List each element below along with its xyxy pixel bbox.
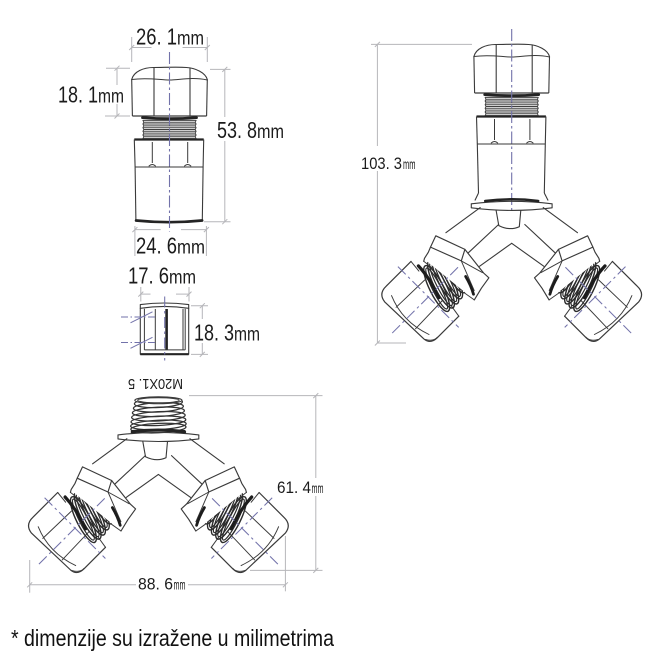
svg-text:mm: mm: [98, 86, 124, 108]
svg-text:mm: mm: [312, 480, 324, 496]
svg-text:mm: mm: [257, 121, 284, 143]
svg-text:M20X1. 5: M20X1. 5: [128, 375, 183, 391]
svg-text:17. 6: 17. 6: [128, 263, 169, 289]
svg-text:mm: mm: [234, 324, 260, 346]
svg-text:26. 1: 26. 1: [136, 24, 177, 50]
svg-text:18. 1: 18. 1: [58, 82, 98, 108]
svg-text:61. 4: 61. 4: [277, 479, 311, 497]
svg-text:mm: mm: [169, 267, 196, 289]
svg-text:* dimenzije su izražene u mili: * dimenzije su izražene u milimetrima: [11, 625, 335, 651]
svg-text:mm: mm: [174, 577, 186, 593]
svg-text:103. 3: 103. 3: [361, 155, 402, 173]
svg-text:mm: mm: [177, 28, 204, 50]
svg-text:88. 6: 88. 6: [138, 576, 173, 594]
svg-text:mm: mm: [403, 156, 416, 172]
svg-text:mm: mm: [177, 237, 205, 259]
svg-text:24. 6: 24. 6: [136, 233, 177, 259]
svg-text:18. 3: 18. 3: [194, 320, 234, 346]
svg-text:53. 8: 53. 8: [217, 117, 257, 143]
